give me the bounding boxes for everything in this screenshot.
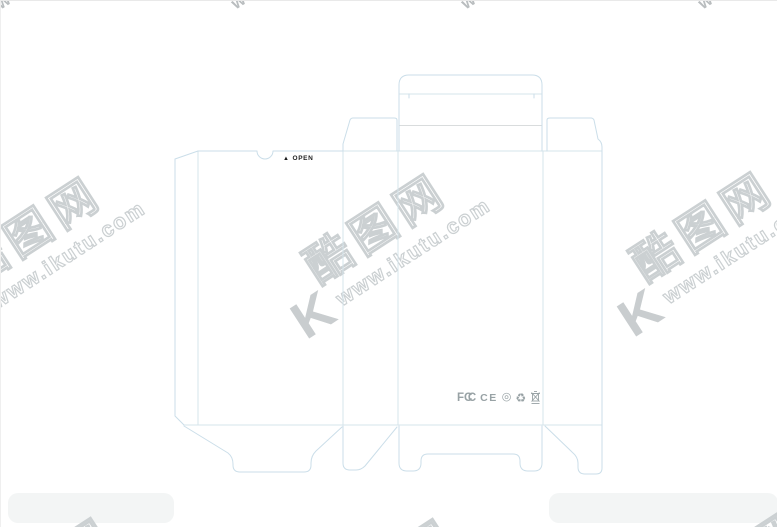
glue-flap [175, 151, 198, 425]
regulatory-icon-row: FCC CE ◎ ♻ [457, 389, 541, 406]
bottom-tuck-flap [184, 426, 342, 472]
cut-lines [175, 75, 602, 474]
weee-bin-icon [530, 390, 541, 405]
certification-circle-icon: ◎ [502, 392, 512, 403]
crease-lines [184, 94, 602, 425]
back-panel-top-edge [198, 151, 343, 159]
packaging-dieline-canvas: w w w w K 酷图网 www.ikutu.com K 酷图网 www.ik… [0, 0, 777, 527]
open-text: OPEN [293, 155, 314, 162]
ce-mark-icon: CE [480, 392, 498, 404]
fcc-mark-icon: FCC [457, 392, 476, 404]
tuck-flap-slits [409, 94, 534, 98]
top-tuck-flap [399, 75, 542, 151]
recycle-icon: ♻ [515, 392, 526, 404]
top-dust-flap-right [547, 118, 602, 151]
open-label: ▲ OPEN [283, 155, 313, 162]
top-dust-flap-left [343, 118, 397, 151]
bottom-dust-flap-left [343, 426, 397, 470]
bottom-front-flap [399, 426, 542, 471]
open-arrow-icon: ▲ [283, 156, 290, 162]
dieline-drawing [1, 1, 777, 527]
